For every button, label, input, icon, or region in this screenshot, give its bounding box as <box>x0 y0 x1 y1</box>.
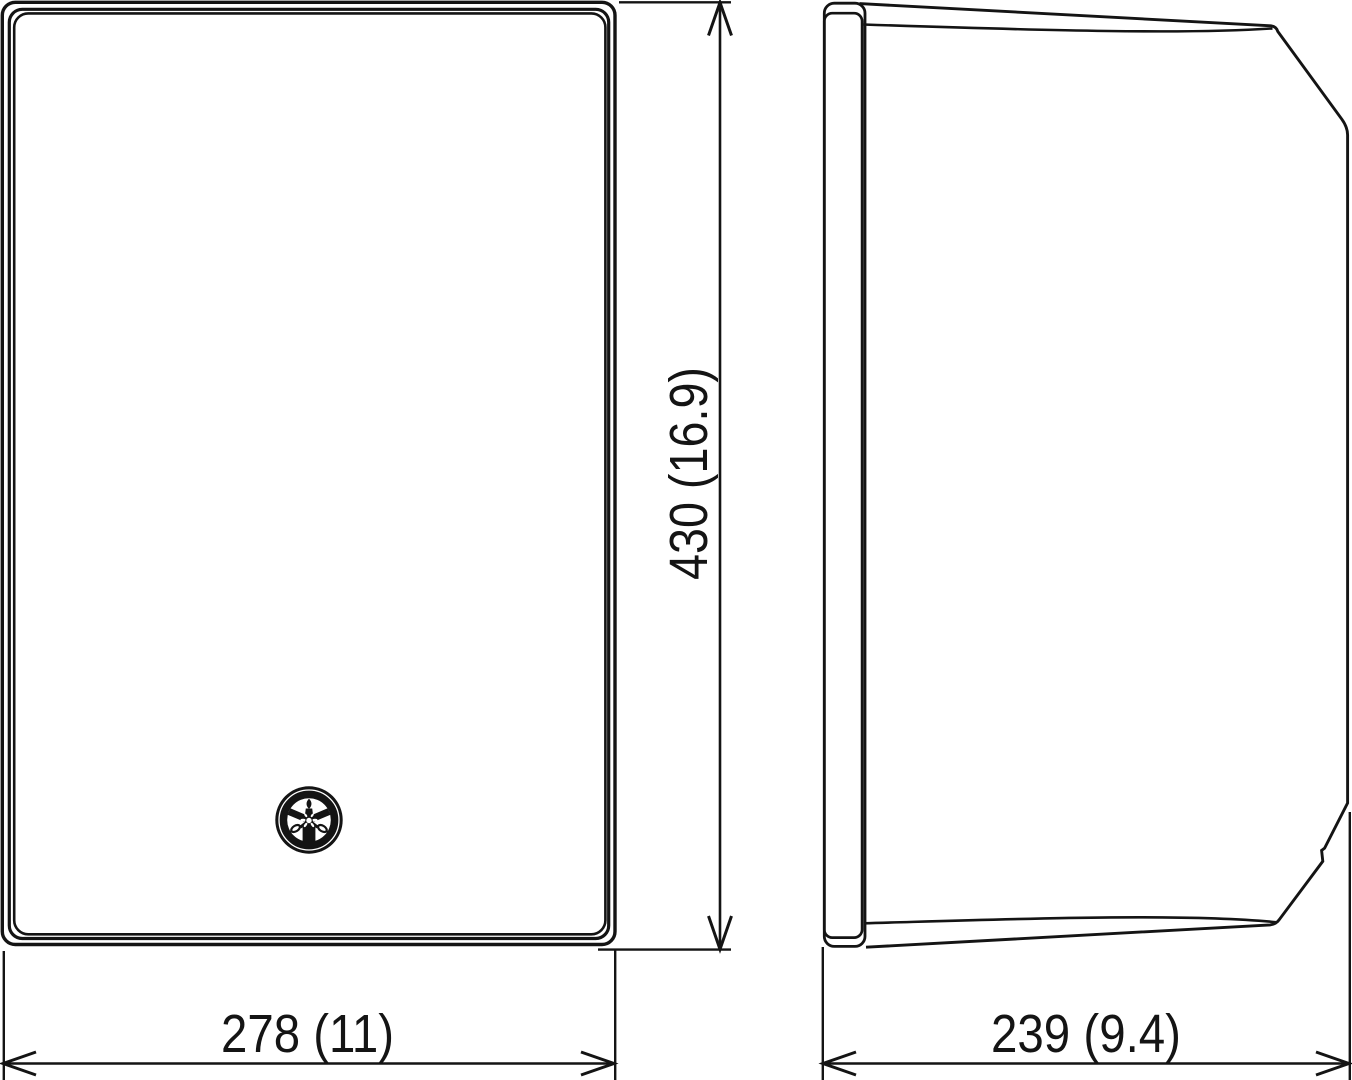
svg-text:430 (16.9): 430 (16.9) <box>659 367 719 580</box>
svg-text:239 (9.4): 239 (9.4) <box>991 1004 1181 1064</box>
svg-text:278 (11): 278 (11) <box>221 1004 394 1064</box>
